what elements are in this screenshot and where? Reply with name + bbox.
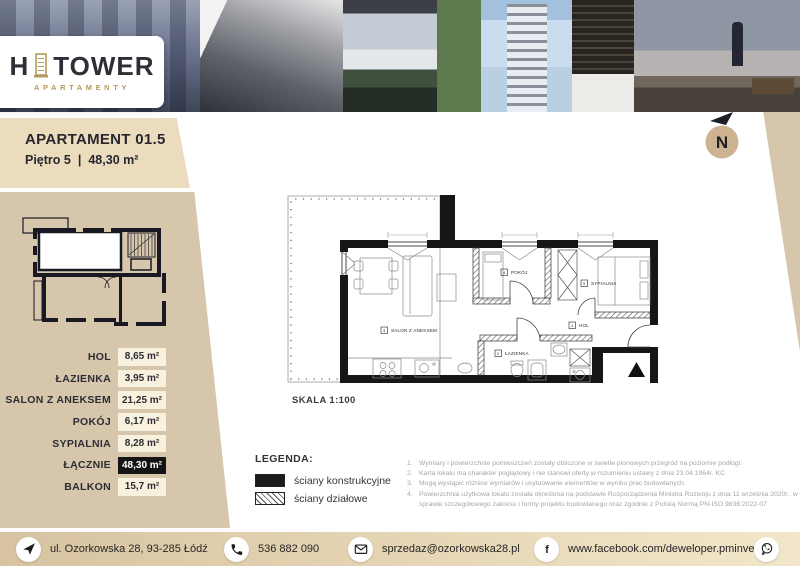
- table-row: POKÓJ6,17 m²: [0, 411, 166, 433]
- logo-word-h: H: [9, 53, 29, 79]
- room-number: 4: [503, 270, 506, 275]
- north-arrow-icon: [710, 112, 733, 125]
- footnote: 2.Karta lokalu ma charakter poglądowy i …: [407, 469, 799, 479]
- logo-word-tower: TOWER: [53, 53, 154, 79]
- dimension-ticks: [388, 232, 613, 238]
- floor-and-area: Piętro 5 | 48,30 m²: [25, 153, 138, 167]
- wooden-bench: [752, 78, 794, 94]
- legend: LEGENDA: ściany konstrukcyjne ściany dzi…: [255, 453, 391, 510]
- legend-label: ściany konstrukcyjne: [294, 475, 391, 487]
- footnote: 1.Wymiary i powierzchnie pomieszczeń zos…: [407, 459, 799, 469]
- room-area-value: 21,25 m²: [118, 391, 166, 409]
- wardrobes: [558, 250, 590, 366]
- room-number: 5: [583, 281, 586, 286]
- building-icon: [33, 52, 49, 79]
- structural-wall-swatch: [255, 474, 285, 487]
- whatsapp-icon: [754, 537, 779, 562]
- room-name: SYPIALNIA: [591, 281, 617, 286]
- email-text: sprzedaz@ozorkowska28.pl: [382, 543, 520, 555]
- room-name: ŁAZIENKA: [505, 351, 530, 356]
- room-area-value: 8,65 m²: [118, 348, 166, 366]
- email-icon: [348, 537, 373, 562]
- room-name: SALON Z ANEKSEM: [391, 328, 437, 333]
- location-icon: [16, 537, 41, 562]
- north-compass: N: [700, 106, 744, 162]
- phone-text: 536 882 090: [258, 543, 319, 555]
- tower-building: [507, 4, 547, 112]
- contact-footer: ul. Ozorkowska 28, 93-285 Łódź 536 882 0…: [0, 532, 800, 566]
- footnotes: 1.Wymiary i powierzchnie pomieszczeń zos…: [407, 459, 799, 510]
- room-area-table: HOL8,65 m² ŁAZIENKA3,95 m² SALON Z ANEKS…: [0, 346, 166, 498]
- address-item[interactable]: ul. Ozorkowska 28, 93-285 Łódź: [16, 532, 208, 566]
- facebook-item[interactable]: f www.facebook.com/deweloper.pminvest: [534, 532, 763, 566]
- legend-title: LEGENDA:: [255, 453, 391, 465]
- room-label: HOL: [88, 351, 111, 363]
- room-name: POKÓJ: [511, 269, 528, 275]
- table-row: BALKON15,7 m²: [0, 476, 166, 498]
- table-row-total: ŁĄCZNIE48,30 m²: [0, 454, 166, 476]
- svg-text:f: f: [545, 544, 549, 556]
- room-label: SALON Z ANEKSEM: [5, 394, 111, 406]
- compass-letter: N: [716, 133, 728, 152]
- brand-logo: H TOWER APARTAMENTY: [0, 36, 164, 108]
- total-area-label: 48,30 m²: [88, 153, 138, 167]
- entrance-arrow-icon: [628, 362, 645, 377]
- facebook-text: www.facebook.com/deweloper.pminvest: [568, 543, 763, 555]
- banner-photo-balcony: [200, 0, 343, 112]
- facebook-icon: f: [534, 537, 559, 562]
- page-title: APARTAMENT 01.5: [25, 131, 166, 148]
- key-plan-thumbnail: [20, 205, 190, 340]
- table-row: HOL8,65 m²: [0, 346, 166, 368]
- room-number: 3: [383, 328, 386, 333]
- room-label: BALKON: [64, 481, 111, 493]
- table-row: ŁAZIENKA3,95 m²: [0, 368, 166, 390]
- room-number: 1: [571, 323, 574, 328]
- room-area-value: 15,7 m²: [118, 478, 166, 496]
- room-label: ŁAZIENKA: [56, 373, 111, 385]
- highlighted-unit: [39, 232, 121, 270]
- room-area-value: 3,95 m²: [118, 370, 166, 388]
- floor-label: Piętro 5: [25, 153, 71, 167]
- banner-photo-terrace-greenwall: [343, 0, 481, 112]
- room-number: 2: [497, 351, 500, 356]
- email-item[interactable]: sprzedaz@ozorkowska28.pl: [348, 532, 520, 566]
- footnote: 3.Mogą wystąpić różnice wymiarów i usytu…: [407, 479, 799, 489]
- footnote: 4.Powierzchnia użytkowa lokalu została o…: [407, 490, 799, 510]
- divider: |: [78, 153, 82, 167]
- banner-photo-rooftop-person: [634, 0, 800, 112]
- room-label: ŁĄCZNIE: [63, 459, 111, 471]
- table-row: SYPIALNIA8,28 m²: [0, 433, 166, 455]
- legend-item: ściany działowe: [255, 492, 391, 505]
- room-area-value: 6,17 m²: [118, 413, 166, 431]
- room-label: SYPIALNIA: [52, 438, 111, 450]
- apartment-header-band: APARTAMENT 01.5 Piętro 5 | 48,30 m²: [0, 118, 190, 188]
- legend-label: ściany działowe: [294, 493, 368, 505]
- scale-label: SKALA 1:100: [292, 395, 356, 406]
- logo-subtitle: APARTAMENTY: [34, 83, 130, 92]
- banner-photo-slats-pillows: [572, 0, 634, 112]
- phone-icon: [224, 537, 249, 562]
- table-row: SALON Z ANEKSEM21,25 m²: [0, 389, 166, 411]
- room-label: POKÓJ: [73, 416, 111, 428]
- partition-wall-swatch: [255, 492, 285, 505]
- whatsapp-item[interactable]: [754, 532, 779, 566]
- right-decor-wedge: [760, 112, 800, 352]
- floor-plan: 3 SALON Z ANEKSEM 4 POKÓJ 5 SYPIALNIA 1 …: [285, 190, 665, 405]
- phone-item[interactable]: 536 882 090: [224, 532, 319, 566]
- legend-item: ściany konstrukcyjne: [255, 474, 391, 487]
- apartment-flyer-page: H TOWER APARTAMENTY APARTAMENT 01.5 Pięt…: [0, 0, 800, 566]
- room-labels: 3 SALON Z ANEKSEM 4 POKÓJ 5 SYPIALNIA 1 …: [381, 269, 617, 357]
- room-name: HOL: [579, 323, 589, 328]
- balcony: [288, 196, 440, 382]
- address-text: ul. Ozorkowska 28, 93-285 Łódź: [50, 543, 208, 555]
- banner-photo-tower: [481, 0, 572, 112]
- total-area-badge: 48,30 m²: [118, 457, 166, 475]
- room-area-value: 8,28 m²: [118, 435, 166, 453]
- person-silhouette: [732, 22, 743, 66]
